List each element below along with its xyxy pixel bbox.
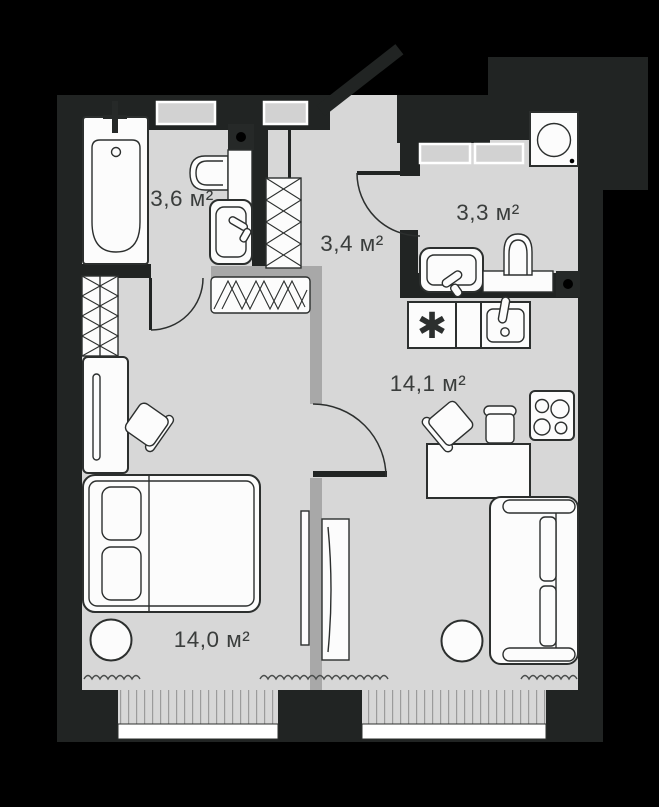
appliance-asterisk-icon: ✱ (417, 306, 447, 347)
sofa (490, 497, 578, 664)
bedroom-wardrobe (82, 276, 118, 356)
shelf-top-left-1 (157, 102, 215, 124)
wc-door-leaf (357, 171, 420, 175)
wardrobe-living-side (322, 519, 349, 660)
duct-box (228, 150, 252, 205)
room-label-wc: 3,3 м² (456, 200, 520, 225)
shelf-wc-2 (475, 144, 523, 163)
dishwasher: ✱ (408, 302, 456, 348)
closet-niche-edge (288, 126, 291, 178)
toilet-bathroom (190, 156, 228, 190)
top-right-corner-block (603, 95, 648, 190)
washer-niche-wall (530, 95, 578, 112)
kitchen-table (427, 444, 530, 498)
entry-closet (266, 178, 301, 268)
bed (83, 475, 260, 612)
sink-bathroom (210, 200, 252, 264)
mirror-bedroom-side (301, 511, 309, 645)
room-label-bathroom: 3,6 м² (150, 186, 214, 211)
bathroom-door-leaf (149, 278, 152, 330)
desk (83, 357, 128, 473)
top-right-parapet (488, 57, 648, 95)
window-left (118, 690, 278, 724)
shoe-rack (211, 277, 310, 313)
bedroom-partition-upper (310, 266, 322, 404)
wc-top-wall (488, 95, 530, 140)
sink-wc (420, 248, 483, 298)
stove (530, 391, 574, 440)
right-wall (578, 95, 603, 690)
shelf-wc-1 (420, 144, 470, 163)
floor-plan-canvas: ✱ (0, 0, 659, 807)
window-right (362, 690, 546, 724)
pillow-1 (102, 487, 141, 540)
wc-left-wall (400, 230, 418, 298)
kitchen-sink (481, 297, 530, 348)
left-wall (57, 95, 82, 690)
bathtub (83, 101, 148, 264)
room-label-hallway: 3,4 м² (320, 231, 384, 256)
pouf (91, 620, 132, 661)
toilet-wc (504, 234, 532, 275)
bedroom-partition-lower (310, 478, 322, 690)
bedroom-door-leaf (313, 471, 387, 477)
side-table (442, 621, 483, 662)
washing-machine (530, 112, 578, 166)
kitchen-chair-2 (484, 406, 516, 443)
top-wall-right-of-entrance (397, 95, 490, 143)
floor-plan: ✱ (0, 0, 659, 807)
bottom-wall-with-windows (57, 690, 603, 742)
kitchen-cabinet (456, 302, 481, 348)
room-label-kitchen-living: 14,1 м² (390, 371, 467, 396)
pillow-2 (102, 547, 141, 600)
shelf-top-left-2 (264, 102, 307, 124)
room-label-bedroom: 14,0 м² (174, 627, 251, 652)
